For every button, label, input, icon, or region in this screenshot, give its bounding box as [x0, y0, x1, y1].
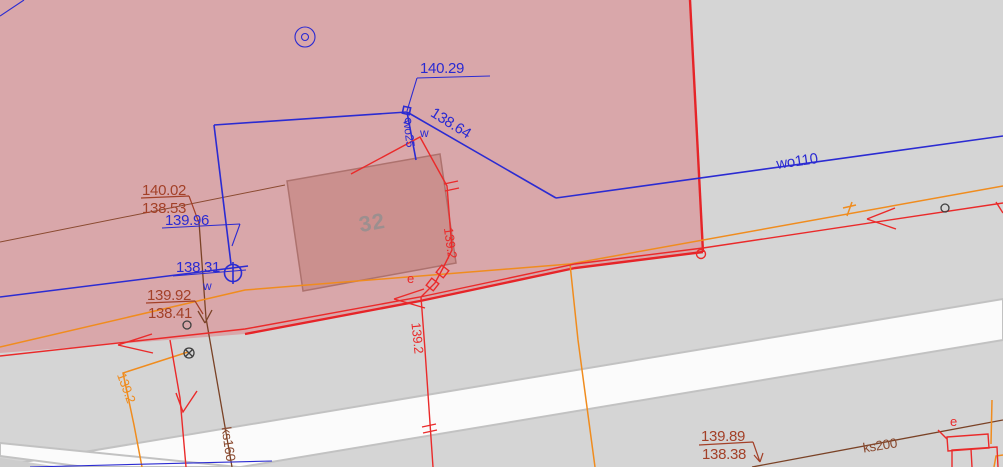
building-number-label: 32: [357, 208, 387, 237]
map-drawing: 32 140.29 138.64 wo25 w wo110 139.96 138…: [0, 0, 1003, 467]
elevation-label: 140.29: [420, 60, 464, 77]
water-meter-label: w: [202, 279, 212, 293]
elevation-label: 138.38: [702, 446, 746, 463]
elevation-label: 140.02: [142, 182, 186, 199]
elevation-label: 138.53: [142, 200, 186, 217]
cad-map-canvas[interactable]: 32 140.29 138.64 wo25 w wo110 139.96 138…: [0, 0, 1003, 467]
elevation-label: 139.92: [147, 287, 191, 304]
water-meter-label: w: [419, 126, 429, 140]
elevation-label: 139.89: [701, 428, 745, 445]
cable-e-label: e: [407, 271, 414, 286]
elevation-label: 138.41: [148, 305, 192, 322]
elevation-label: 138.31: [176, 259, 220, 276]
cable-e-label: e: [950, 414, 957, 429]
